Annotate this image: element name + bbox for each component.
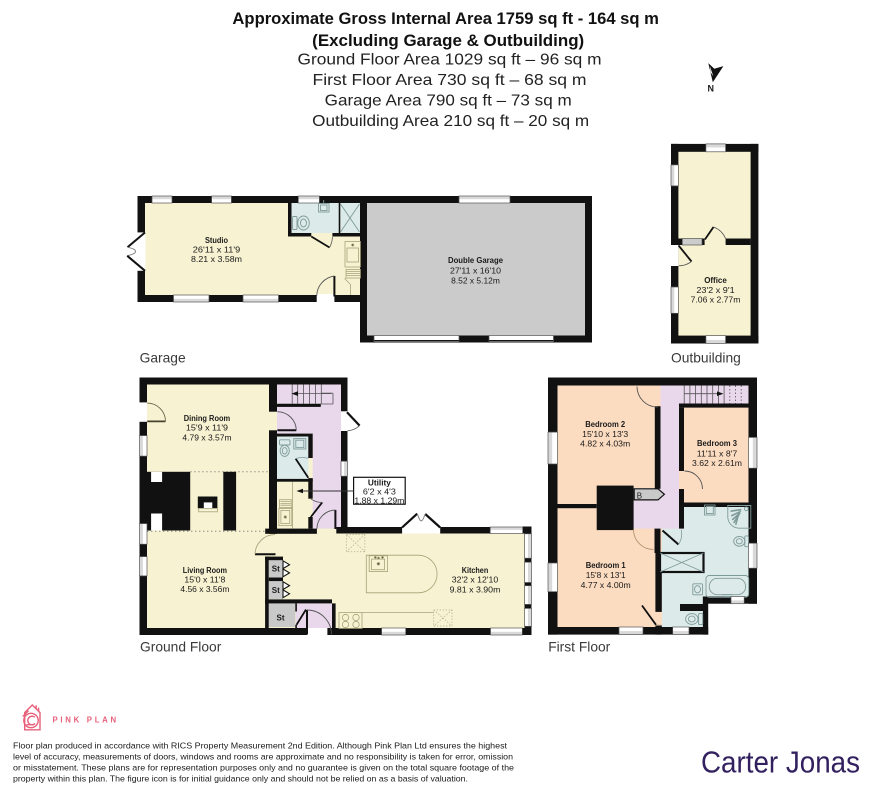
svg-text:32'2 x 12'10: 32'2 x 12'10 (452, 575, 499, 585)
svg-text:Ground Floor: Ground Floor (140, 640, 222, 655)
svg-text:level of accuracy, measurement: level of accuracy, measurements of doors… (13, 752, 513, 761)
svg-text:15'10 x 13'3: 15'10 x 13'3 (582, 429, 628, 439)
svg-text:Outbuilding: Outbuilding (671, 351, 741, 366)
svg-text:4.79 x 3.57m: 4.79 x 3.57m (182, 432, 231, 442)
svg-text:Double Garage: Double Garage (448, 256, 504, 265)
svg-text:Outbuilding Area 210 sq ft – 2: Outbuilding Area 210 sq ft – 20 sq m (312, 113, 589, 130)
svg-text:Office: Office (704, 276, 727, 285)
svg-text:Ground Floor Area 1029 sq ft –: Ground Floor Area 1029 sq ft – 96 sq m (298, 52, 602, 69)
svg-text:8.21 x 3.58m: 8.21 x 3.58m (191, 254, 242, 264)
svg-text:Garage Area 790 sq ft – 73 sq: Garage Area 790 sq ft – 73 sq m (325, 92, 572, 109)
svg-text:Bedroom 3: Bedroom 3 (697, 439, 738, 448)
svg-text:B: B (637, 491, 642, 500)
svg-text:4.82 x 4.03m: 4.82 x 4.03m (580, 439, 630, 449)
svg-text:8.52 x 5.12m: 8.52 x 5.12m (451, 276, 500, 286)
svg-text:15'9 x 11'9: 15'9 x 11'9 (186, 423, 228, 433)
svg-text:Dining Room: Dining Room (184, 414, 230, 423)
svg-text:Garage: Garage (140, 351, 186, 366)
svg-text:26'11 x 11'9: 26'11 x 11'9 (193, 245, 241, 255)
svg-text:4.56 x 3.56m: 4.56 x 3.56m (180, 584, 229, 594)
svg-text:Approximate Gross Internal Are: Approximate Gross Internal Area 1759 sq … (232, 10, 659, 28)
svg-text:N: N (708, 84, 715, 94)
svg-text:PINK PLAN: PINK PLAN (53, 715, 119, 724)
svg-text:15'8 x 13'1: 15'8 x 13'1 (586, 570, 626, 580)
svg-text:3.62 x 2.61m: 3.62 x 2.61m (692, 458, 742, 468)
svg-text:First Floor: First Floor (548, 640, 610, 655)
svg-text:or misstatement. These plans a: or misstatement. These plans are for rep… (13, 763, 514, 772)
svg-text:Carter Jonas: Carter Jonas (701, 744, 860, 779)
svg-text:St: St (272, 586, 280, 595)
svg-text:St: St (272, 565, 280, 574)
svg-text:7.06 x 2.77m: 7.06 x 2.77m (691, 294, 741, 304)
svg-text:(Excluding Garage & Outbuildin: (Excluding Garage & Outbuilding) (312, 32, 584, 50)
svg-text:First Floor Area 730 sq ft – 6: First Floor Area 730 sq ft – 68 sq m (313, 72, 587, 89)
svg-text:Bedroom 2: Bedroom 2 (585, 420, 626, 429)
svg-text:Bedroom 1: Bedroom 1 (586, 561, 627, 570)
svg-text:9.81 x 3.90m: 9.81 x 3.90m (450, 584, 501, 594)
svg-text:St: St (277, 614, 285, 623)
svg-text:1.88 x 1.29m: 1.88 x 1.29m (354, 496, 404, 506)
svg-text:27'11 x 16'10: 27'11 x 16'10 (450, 265, 501, 275)
svg-text:11'11 x 8'7: 11'11 x 8'7 (697, 448, 738, 458)
svg-text:Floor plan produced in accorda: Floor plan produced in accordance with R… (13, 741, 508, 750)
svg-text:15'0 x 11'8: 15'0 x 11'8 (184, 574, 225, 584)
svg-text:4.77 x 4.00m: 4.77 x 4.00m (581, 580, 631, 590)
svg-text:property within this plan. The: property within this plan. The figure ic… (13, 774, 468, 783)
